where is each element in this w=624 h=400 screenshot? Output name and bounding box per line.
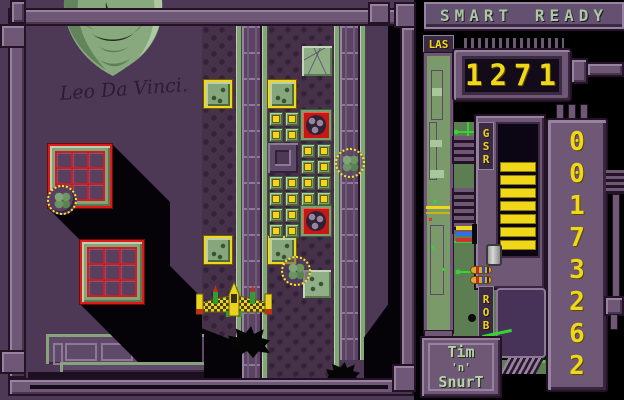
led-green — [442, 268, 445, 271]
small-stud-tile[interactable] — [317, 144, 331, 158]
gsr-bar — [500, 162, 536, 172]
small-stud-tile[interactable] — [269, 208, 283, 222]
pipe-ribbed — [606, 170, 624, 194]
frame-knot — [368, 2, 390, 24]
score-value: 1271 — [462, 56, 562, 95]
status-ready: READY — [535, 6, 608, 25]
wire-connector — [472, 224, 477, 244]
laser-label: LAS — [429, 38, 449, 51]
code-digit: 1 — [569, 190, 585, 222]
gsr-bar — [500, 240, 536, 250]
small-stud-tile[interactable] — [301, 160, 315, 174]
small-stud-tile[interactable] — [301, 144, 315, 158]
code-digit: 2 — [569, 350, 585, 382]
player-ship-sprite[interactable] — [196, 282, 272, 320]
resistor — [470, 266, 492, 274]
code-digit: 3 — [569, 254, 585, 286]
small-stud-tile[interactable] — [269, 224, 283, 238]
small-stud-tile[interactable] — [285, 208, 299, 222]
resistor — [470, 276, 492, 284]
laser-gauge-mark — [426, 212, 450, 214]
small-stud-tile[interactable] — [269, 192, 283, 206]
code-digit: 2 — [569, 286, 585, 318]
gsr-bar — [500, 188, 536, 198]
capacitor — [486, 244, 502, 266]
pipe-vertical — [612, 194, 620, 298]
ball-sprite[interactable] — [47, 185, 77, 215]
logo-plaque: Tim 'n' SnurT — [420, 336, 502, 398]
laser-gauge-mark — [426, 206, 450, 209]
frame-left — [8, 26, 26, 378]
small-stud-tile[interactable] — [285, 224, 299, 238]
laser-gauge-cell — [430, 140, 442, 147]
wire-yellow — [456, 226, 472, 230]
laser-gauge-cell — [432, 88, 442, 96]
gsr-bar — [500, 214, 536, 224]
laser-gauge-cell — [430, 170, 444, 178]
small-stud-tile[interactable] — [269, 112, 283, 126]
red-ball-tile[interactable] — [301, 206, 331, 236]
yellow-border-tile[interactable] — [204, 80, 232, 108]
small-stud-tile[interactable] — [285, 176, 299, 190]
led-green — [431, 246, 434, 249]
code-digit: 6 — [569, 318, 585, 350]
frame-knot — [392, 364, 416, 392]
cracked-green-tile[interactable] — [302, 46, 332, 76]
small-stud-tile[interactable] — [301, 192, 315, 206]
small-stud-tile[interactable] — [317, 160, 331, 174]
red-ball-tile[interactable] — [301, 110, 331, 140]
frame-knot — [0, 24, 26, 48]
small-stud-tile[interactable] — [285, 112, 299, 126]
laser-label-box: LAS — [423, 35, 454, 53]
code-digit: 0 — [569, 158, 585, 190]
frame-bottom-channel — [30, 385, 388, 389]
small-stud-tile[interactable] — [317, 192, 331, 206]
target-cursor[interactable] — [281, 256, 311, 286]
pipe-horizontal — [586, 62, 624, 77]
small-stud-tile[interactable] — [301, 176, 315, 190]
gsr-bar — [500, 227, 536, 237]
pipe-stub — [610, 314, 618, 330]
frame-stub — [10, 0, 26, 24]
small-stud-tile[interactable] — [285, 192, 299, 206]
code-digit: 7 — [569, 222, 585, 254]
small-stud-tile[interactable] — [285, 128, 299, 142]
frame-knot — [0, 350, 26, 374]
code-digit: 0 — [569, 126, 585, 158]
frame-right — [400, 26, 416, 378]
pipe-elbow — [604, 296, 624, 316]
led-green — [434, 200, 437, 203]
rob-label: ROB — [478, 286, 494, 338]
status-bar: SMART READY — [424, 2, 624, 29]
code-digits: 00173262 — [556, 126, 598, 386]
yellow-border-tile[interactable] — [268, 80, 296, 108]
gsr-gauge-bars — [500, 162, 536, 254]
yellow-border-tile[interactable] — [204, 236, 232, 264]
gsr-label: GSR — [478, 122, 494, 170]
small-stud-tile[interactable] — [269, 128, 283, 142]
duct-ribbed — [452, 136, 474, 164]
game-screen: Leo Da Vinci. — [0, 0, 624, 400]
gsr-bar — [500, 175, 536, 185]
wire-red — [456, 238, 472, 242]
target-cursor[interactable] — [335, 148, 365, 178]
wire-blue — [456, 232, 472, 236]
logo-line-3: SnurT — [438, 375, 483, 390]
red-grid-block[interactable] — [80, 240, 144, 304]
status-smart: SMART — [440, 6, 513, 25]
small-stud-tile[interactable] — [317, 176, 331, 190]
laser-gauge-detail — [430, 225, 444, 295]
gsr-bar — [500, 201, 536, 211]
purple-emboss-tile[interactable] — [268, 143, 298, 173]
logo-frame: Tim 'n' SnurT — [428, 343, 494, 391]
sprite-layer — [0, 0, 414, 400]
frame-knot — [394, 2, 416, 28]
small-stud-tile[interactable] — [269, 176, 283, 190]
frame-top — [8, 8, 404, 26]
led-red — [429, 218, 432, 221]
blast-splatter — [228, 326, 270, 358]
logo-line-1: Tim — [447, 345, 474, 360]
chip — [496, 288, 546, 358]
